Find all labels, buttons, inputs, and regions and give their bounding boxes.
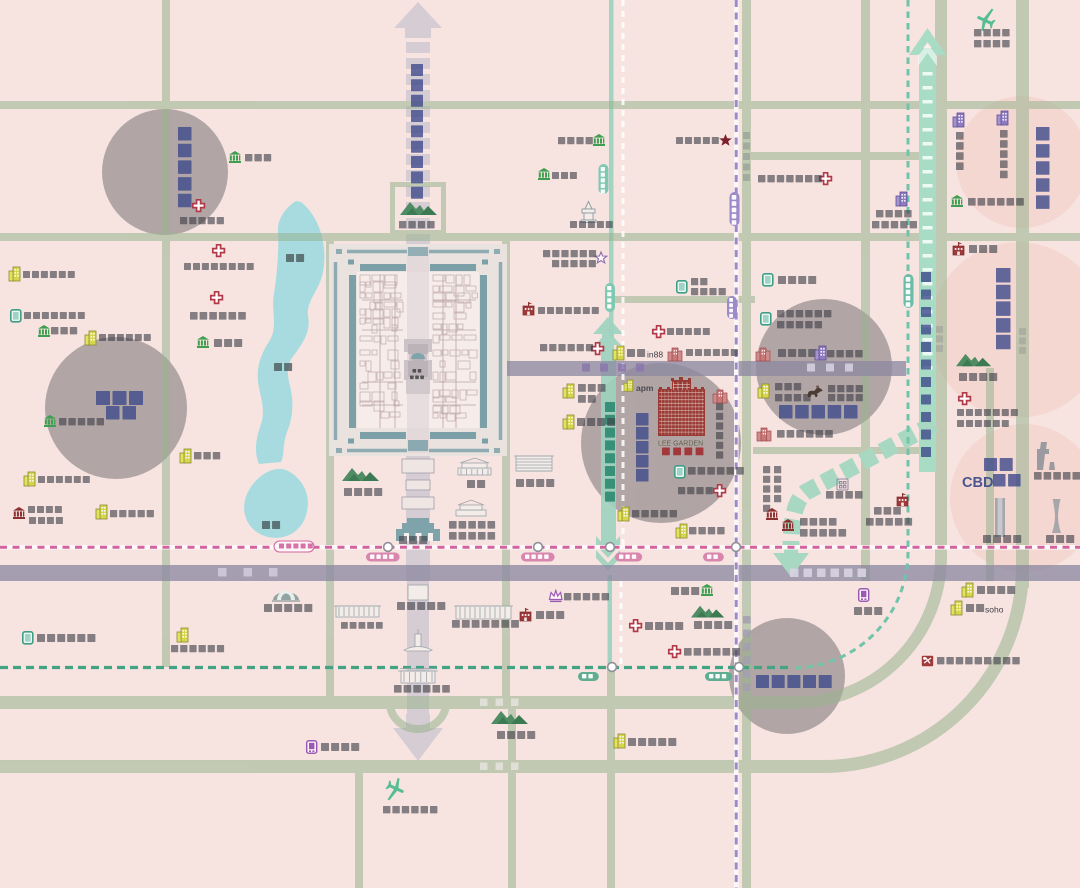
svg-text:in88: in88 xyxy=(647,350,663,360)
svg-text:soho: soho xyxy=(985,605,1004,615)
svg-text:LEE GARDEN: LEE GARDEN xyxy=(658,441,703,448)
svg-text:CBD: CBD xyxy=(962,475,993,491)
svg-text:apm: apm xyxy=(636,383,654,393)
